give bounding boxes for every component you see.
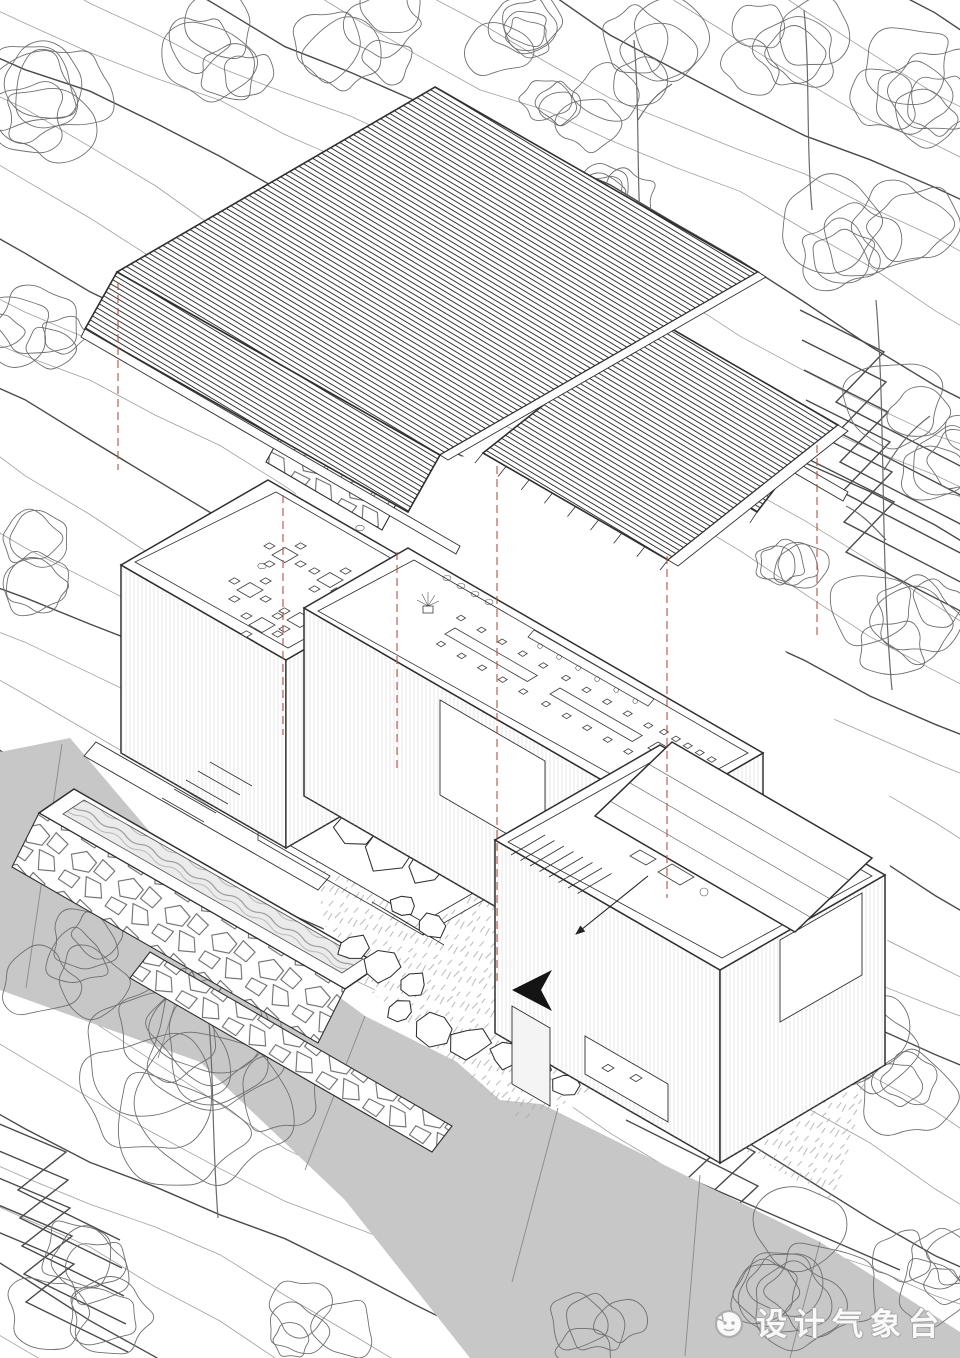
architectural-drawing: 设计气象台 [0,0,960,1358]
watermark-text: 设计气象台 [756,1299,946,1344]
watermark: 设计气象台 [710,1299,946,1344]
brand-logo-icon [710,1304,746,1340]
drawing-canvas [0,0,960,1358]
